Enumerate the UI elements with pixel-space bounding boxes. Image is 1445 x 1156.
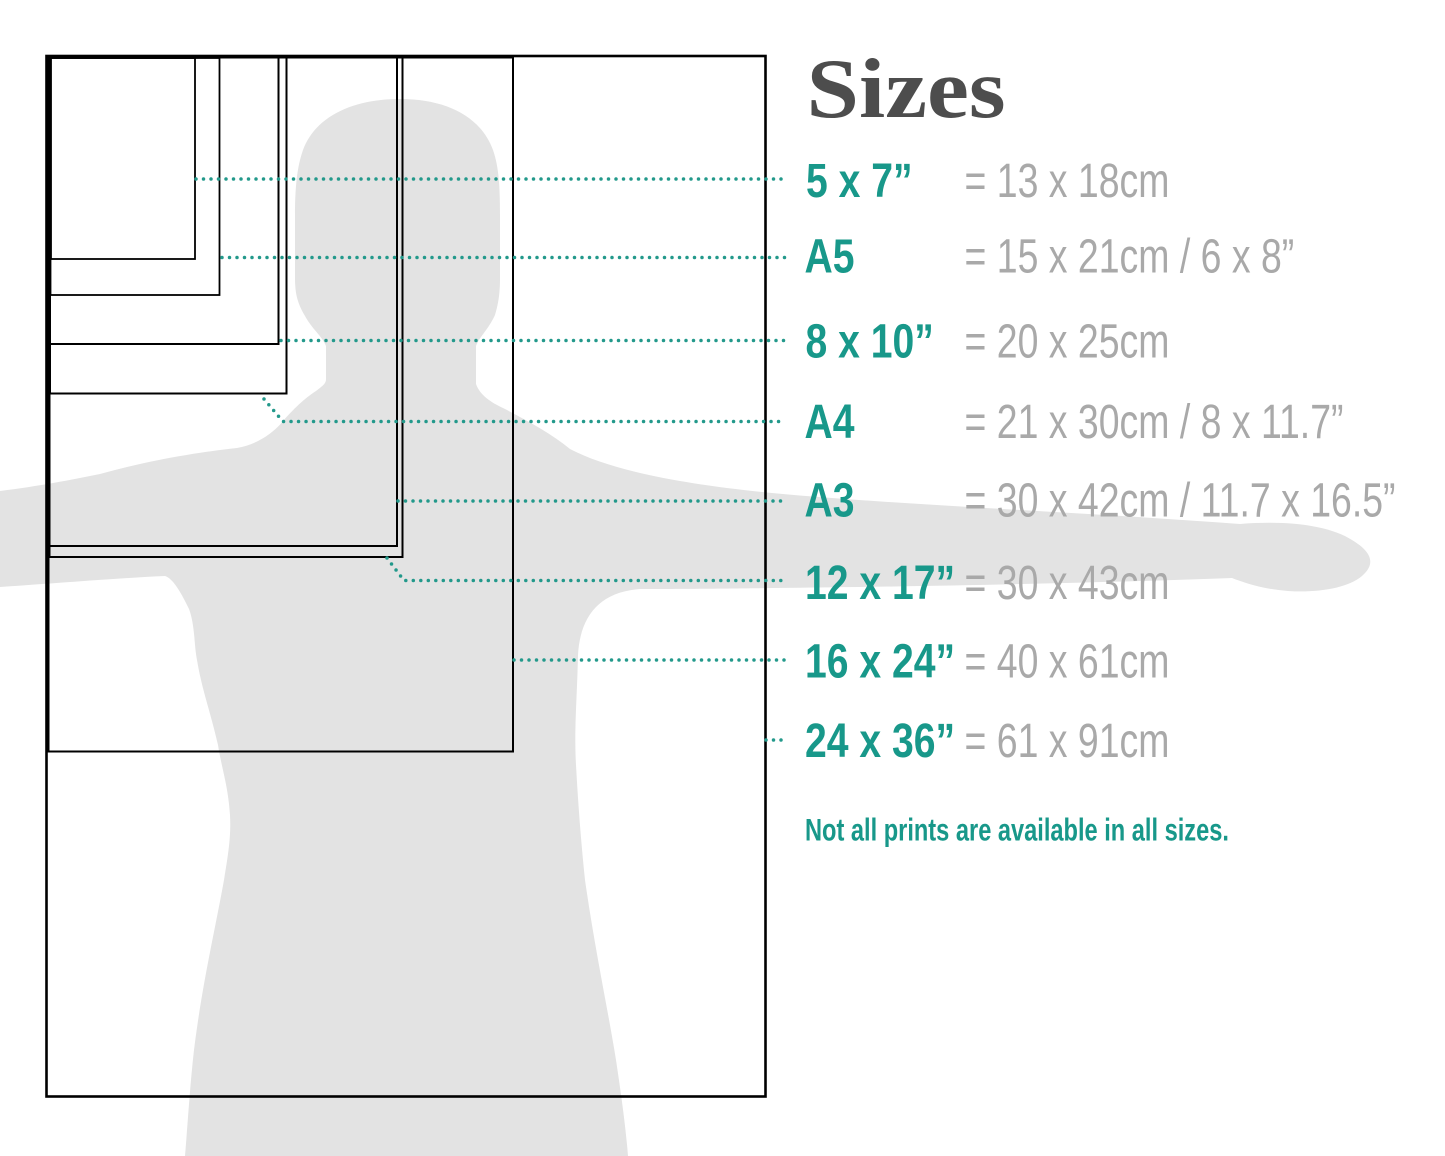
svg-text:= 20 x 25cm: = 20 x 25cm — [965, 315, 1170, 369]
svg-text:12 x 17”: 12 x 17” — [805, 556, 955, 610]
svg-text:16 x 24”: 16 x 24” — [805, 635, 955, 689]
svg-text:24 x 36”: 24 x 36” — [805, 714, 955, 768]
svg-text:= 21 x 30cm / 8 x 11.7”: = 21 x 30cm / 8 x 11.7” — [965, 396, 1344, 450]
svg-text:= 15 x 21cm / 6 x 8”: = 15 x 21cm / 6 x 8” — [965, 230, 1295, 284]
svg-text:= 61 x 91cm: = 61 x 91cm — [965, 715, 1170, 769]
svg-text:A4: A4 — [805, 395, 856, 449]
svg-text:Not all prints are available i: Not all prints are available in all size… — [805, 812, 1229, 847]
svg-text:8 x 10”: 8 x 10” — [806, 315, 934, 369]
svg-text:A3: A3 — [805, 474, 855, 528]
svg-text:= 13 x 18cm: = 13 x 18cm — [965, 155, 1170, 209]
svg-text:= 30 x 42cm / 11.7 x 16.5”: = 30 x 42cm / 11.7 x 16.5” — [965, 474, 1396, 528]
svg-text:Sizes: Sizes — [807, 42, 1006, 136]
svg-text:= 40 x 61cm: = 40 x 61cm — [965, 635, 1170, 689]
svg-text:5 x 7”: 5 x 7” — [806, 154, 913, 208]
svg-text:A5: A5 — [805, 230, 855, 284]
svg-text:= 30 x 43cm: = 30 x 43cm — [965, 557, 1170, 611]
